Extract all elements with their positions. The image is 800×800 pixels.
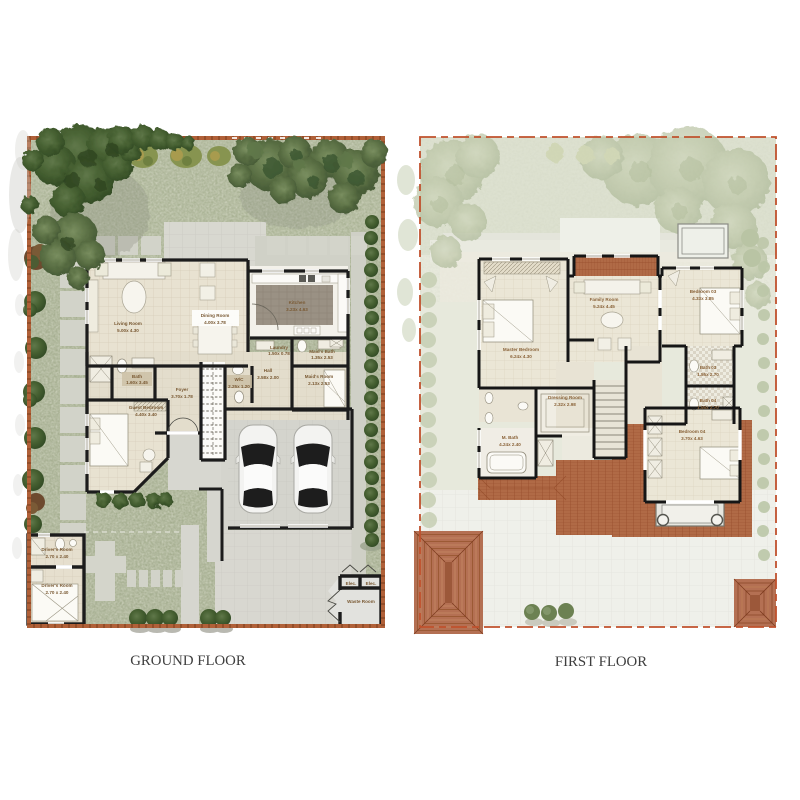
svg-text:Kitchen: Kitchen <box>289 300 306 305</box>
svg-text:2.13x 2.53: 2.13x 2.53 <box>308 381 330 386</box>
svg-text:GROUND FLOOR: GROUND FLOOR <box>130 653 246 669</box>
svg-text:Maid's Bath: Maid's Bath <box>309 349 335 354</box>
svg-text:5.00x 4.30: 5.00x 4.30 <box>117 328 139 333</box>
svg-text:2.70 x 2.40: 2.70 x 2.40 <box>46 554 69 559</box>
svg-text:1.60x 3.45: 1.60x 3.45 <box>126 380 148 385</box>
svg-text:5.24x 4.45: 5.24x 4.45 <box>593 304 615 309</box>
svg-text:Family Room: Family Room <box>590 297 619 302</box>
svg-text:Dining Room: Dining Room <box>201 313 230 318</box>
svg-text:3.58x 2.00: 3.58x 2.00 <box>257 375 279 380</box>
svg-text:3.70x 4.63: 3.70x 4.63 <box>681 436 703 441</box>
svg-text:2.25x 1.20: 2.25x 1.20 <box>228 384 250 389</box>
svg-text:Dressing Room: Dressing Room <box>548 395 582 400</box>
svg-text:Living Room: Living Room <box>114 321 142 326</box>
svg-text:Driver's Room: Driver's Room <box>41 583 72 588</box>
svg-text:Maid's Room: Maid's Room <box>305 374 333 379</box>
svg-text:Foyer: Foyer <box>176 387 189 392</box>
svg-text:M. Bath: M. Bath <box>502 435 519 440</box>
svg-text:Elec.: Elec. <box>366 581 377 586</box>
svg-text:6.24x 4.30: 6.24x 4.30 <box>510 354 532 359</box>
svg-text:Bedroom 04: Bedroom 04 <box>679 429 706 434</box>
svg-text:Driver's Room: Driver's Room <box>41 547 72 552</box>
svg-text:W/C: W/C <box>235 377 245 382</box>
svg-text:1.55x 2.70: 1.55x 2.70 <box>697 372 719 377</box>
svg-text:Master Bedroom: Master Bedroom <box>503 347 539 352</box>
svg-text:Guest Bedroom: Guest Bedroom <box>129 405 163 410</box>
svg-text:2.32x 2.98: 2.32x 2.98 <box>554 402 576 407</box>
svg-text:Waste Room: Waste Room <box>347 599 375 604</box>
svg-text:2.70 x 2.40: 2.70 x 2.40 <box>46 590 69 595</box>
svg-text:4.24x 2.40: 4.24x 2.40 <box>499 442 521 447</box>
svg-text:3.70x 1.78: 3.70x 1.78 <box>171 394 193 399</box>
svg-text:3.23x 4.63: 3.23x 4.63 <box>286 307 308 312</box>
svg-text:Bath 04: Bath 04 <box>700 398 717 403</box>
svg-text:FIRST FLOOR: FIRST FLOOR <box>555 654 647 670</box>
svg-text:Bath 03: Bath 03 <box>700 365 717 370</box>
svg-text:Bath: Bath <box>132 374 142 379</box>
svg-text:Hall: Hall <box>264 368 272 373</box>
svg-text:Bedroom 03: Bedroom 03 <box>690 289 717 294</box>
svg-text:4.00x 3.78: 4.00x 3.78 <box>204 320 226 325</box>
svg-text:1.55x 2.70: 1.55x 2.70 <box>697 405 719 410</box>
svg-text:4.40x 3.40: 4.40x 3.40 <box>135 412 157 417</box>
svg-text:Elec.: Elec. <box>346 581 357 586</box>
svg-text:Laundry: Laundry <box>270 345 289 350</box>
svg-text:1.35x 2.53: 1.35x 2.53 <box>311 355 333 360</box>
svg-text:4.33x 3.85: 4.33x 3.85 <box>692 296 714 301</box>
svg-text:1.50x 0.78: 1.50x 0.78 <box>268 351 290 356</box>
